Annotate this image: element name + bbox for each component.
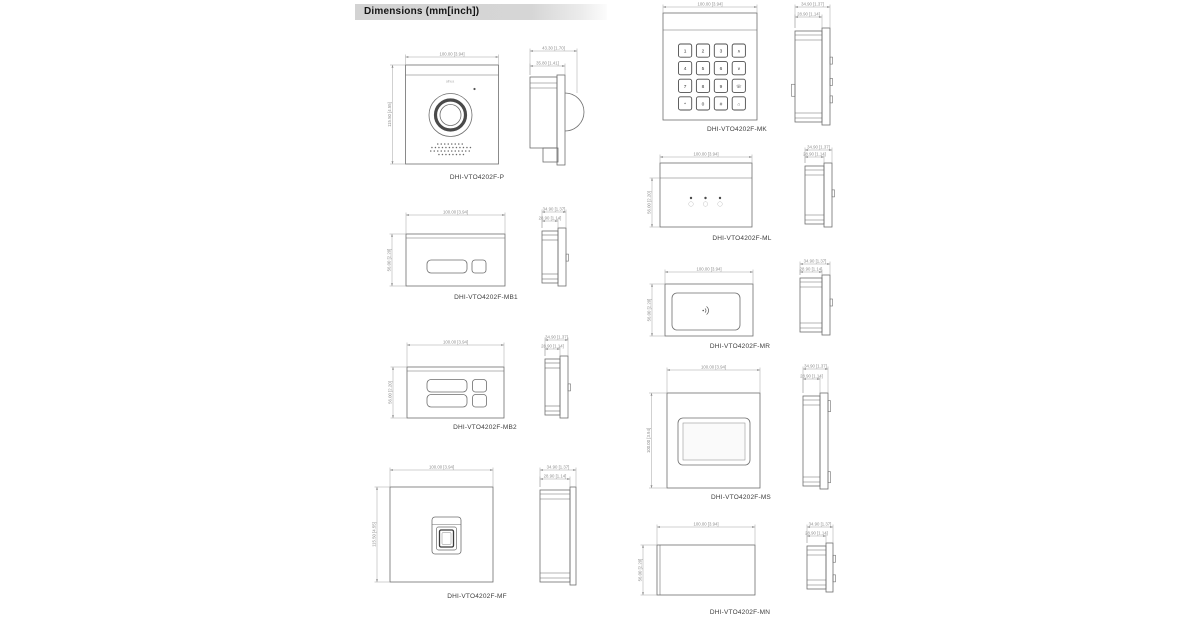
side-view bbox=[545, 356, 571, 418]
indicator-icon bbox=[703, 202, 708, 207]
dim-text: 28.90 [1.14] bbox=[805, 530, 828, 535]
dim-arrow bbox=[392, 415, 394, 418]
indicator-led bbox=[690, 197, 692, 199]
dim-arrow bbox=[651, 178, 653, 181]
speaker-hole bbox=[438, 147, 440, 149]
speaker-hole bbox=[434, 150, 436, 152]
speaker-hole bbox=[444, 143, 446, 145]
speaker-hole bbox=[431, 147, 433, 149]
dim-arrow bbox=[391, 234, 393, 237]
keypad-key: ∧ bbox=[732, 44, 745, 57]
dim-arrow bbox=[562, 65, 565, 67]
dim-arrow bbox=[651, 284, 653, 287]
dim-arrow bbox=[376, 487, 378, 490]
front-view bbox=[406, 234, 505, 286]
dimensions: 100.00 [3.94]56.00 [2.20]34.90 [1.37]28.… bbox=[386, 206, 566, 286]
side-view bbox=[530, 75, 584, 165]
key-label: ∧ bbox=[737, 49, 740, 54]
dim-arrow bbox=[392, 367, 394, 370]
keypad-key: * bbox=[679, 97, 692, 110]
dim-text: 100.00 [3.94] bbox=[443, 209, 468, 214]
dimensions: 100.00 [3.94]56.00 [2.20]34.90 [1.37]28.… bbox=[646, 144, 832, 227]
keypad-key: 9 bbox=[714, 79, 727, 92]
key-label: ⌂ bbox=[737, 101, 740, 106]
side-body bbox=[542, 231, 558, 283]
speaker-hole bbox=[452, 147, 454, 149]
side-foot bbox=[543, 148, 558, 162]
dim-arrow bbox=[392, 65, 394, 68]
speaker-hole bbox=[451, 143, 453, 145]
speaker-hole bbox=[459, 147, 461, 149]
side-body bbox=[545, 359, 560, 415]
contactless-icon bbox=[702, 307, 708, 315]
keypad-key: 3 bbox=[714, 44, 727, 57]
dim-text: 28.90 [1.14] bbox=[800, 266, 823, 271]
key-label: ☏ bbox=[736, 84, 742, 89]
side-mount-plate bbox=[820, 393, 828, 489]
side-body bbox=[530, 77, 557, 148]
dim-arrow bbox=[574, 50, 577, 52]
speaker-hole bbox=[438, 154, 440, 156]
speaker-hole bbox=[437, 143, 439, 145]
speaker-hole bbox=[456, 154, 458, 156]
dim-text: 100.00 [3.94] bbox=[701, 364, 726, 369]
speaker-hole bbox=[470, 147, 472, 149]
dim-text: 100.00 [3.94] bbox=[697, 1, 722, 6]
side-view bbox=[803, 393, 831, 489]
module-drawing-ms: 100.00 [3.94]100.00 [3.94]34.90 [1.37]28… bbox=[646, 363, 831, 501]
speaker-hole bbox=[469, 150, 471, 152]
dim-text: 100.00 [3.94] bbox=[693, 521, 718, 526]
speaker-hole bbox=[458, 150, 460, 152]
dim-text: 56.00 [2.20] bbox=[646, 191, 651, 214]
dim-text: 35.80 [1.41] bbox=[536, 60, 559, 65]
dim-text: 100.00 [3.94] bbox=[439, 51, 464, 56]
front-view: alhua bbox=[406, 65, 499, 164]
dimension-drawings-canvas: alhua100.00 [3.94]115.50 [4.55]43.30 [1.… bbox=[0, 0, 1200, 630]
speaker-hole bbox=[456, 147, 458, 149]
keypad-key: 7 bbox=[679, 79, 692, 92]
keypad-key: 2 bbox=[696, 44, 709, 57]
key-label: * bbox=[684, 101, 686, 107]
dim-arrow bbox=[540, 469, 543, 471]
speaker-hole bbox=[435, 147, 437, 149]
front-view bbox=[657, 545, 755, 595]
dim-arrow bbox=[657, 526, 660, 528]
keypad-key: 6 bbox=[714, 62, 727, 75]
dim-arrow bbox=[651, 224, 653, 227]
speaker-hole bbox=[458, 143, 460, 145]
dim-text: 115.50 [4.55] bbox=[371, 522, 376, 547]
dim-text: 34.90 [1.37] bbox=[543, 206, 566, 211]
module-drawing-mk: 123∧456∨789☏*0#⌂100.00 [3.94]34.90 [1.37… bbox=[663, 1, 833, 133]
side-mount-plate bbox=[822, 28, 830, 125]
dim-arrow bbox=[660, 156, 663, 158]
speaker-hole bbox=[451, 150, 453, 152]
speaker-hole bbox=[455, 150, 457, 152]
keypad-key: 4 bbox=[679, 62, 692, 75]
dim-arrow bbox=[642, 592, 644, 595]
call-button bbox=[472, 260, 486, 273]
indicator-icon bbox=[718, 202, 723, 207]
dim-arrow bbox=[406, 214, 409, 216]
speaker-hole bbox=[441, 143, 443, 145]
dim-arrow bbox=[827, 6, 830, 8]
brand-logo: alhua bbox=[446, 80, 454, 84]
module-drawing-mn: 100.00 [3.94]56.00 [2.20]34.90 [1.37]28.… bbox=[637, 521, 835, 616]
front-view: 123∧456∨789☏*0#⌂ bbox=[663, 13, 757, 120]
side-body bbox=[803, 396, 820, 486]
module-drawing-p: alhua100.00 [3.94]115.50 [4.55]43.30 [1.… bbox=[387, 45, 584, 181]
speaker-hole bbox=[449, 147, 451, 149]
speaker-hole bbox=[448, 150, 450, 152]
dim-arrow bbox=[667, 369, 670, 371]
dim-text: 56.00 [2.20] bbox=[386, 249, 391, 272]
module-label: DHI-VTO4202F-MK bbox=[707, 126, 767, 133]
keypad-key: 8 bbox=[696, 79, 709, 92]
name-tag-slot bbox=[427, 260, 467, 273]
dim-text: 100.00 [3.94] bbox=[429, 464, 454, 469]
module-label: DHI-VTO4202F-MB2 bbox=[453, 424, 517, 431]
dim-text: 115.50 [4.55] bbox=[387, 102, 392, 127]
key-label: 3 bbox=[720, 49, 723, 55]
indicator-led bbox=[719, 197, 721, 199]
keypad-key: 5 bbox=[696, 62, 709, 75]
dim-text: 100.00 [3.94] bbox=[693, 151, 718, 156]
side-mount-plate bbox=[824, 163, 832, 227]
keypad-key: 1 bbox=[679, 44, 692, 57]
wave-arc bbox=[705, 309, 706, 313]
dim-text: 34.90 [1.37] bbox=[809, 521, 832, 526]
speaker-hole bbox=[448, 143, 450, 145]
side-clip bbox=[792, 84, 796, 96]
side-mount-plate bbox=[570, 487, 576, 585]
side-body bbox=[795, 31, 822, 122]
speaker-hole bbox=[462, 150, 464, 152]
dim-arrow bbox=[663, 6, 666, 8]
dim-text: 100.00 [3.94] bbox=[443, 339, 468, 344]
key-label: 4 bbox=[684, 66, 687, 72]
speaker-hole bbox=[459, 154, 461, 156]
speaker-hole bbox=[463, 154, 465, 156]
microphone-hole bbox=[473, 88, 475, 90]
dim-text: 56.00 [2.20] bbox=[646, 299, 651, 322]
front-panel-outline bbox=[407, 367, 504, 418]
module-drawing-mb2: 100.00 [3.94]56.00 [2.20]34.90 [1.37]28.… bbox=[387, 334, 570, 431]
key-label: 9 bbox=[720, 84, 723, 90]
dim-arrow bbox=[391, 283, 393, 286]
side-mount-plate bbox=[822, 275, 830, 335]
side-body bbox=[540, 490, 570, 582]
module-drawing-mr: 100.00 [3.94]56.00 [2.20]34.90 [1.37]28.… bbox=[646, 258, 832, 350]
module-label: DHI-VTO4202F-MF bbox=[447, 593, 507, 600]
dim-text: 100.00 [3.94] bbox=[696, 266, 721, 271]
keypad-key: ∨ bbox=[732, 62, 745, 75]
dim-arrow bbox=[651, 333, 653, 336]
module-drawing-ml: 100.00 [3.94]56.00 [2.20]34.90 [1.37]28.… bbox=[646, 144, 834, 242]
fingerprint-sensor-icon bbox=[432, 517, 461, 554]
call-button bbox=[473, 395, 487, 408]
side-mount-plate bbox=[826, 543, 833, 592]
speaker-hole bbox=[441, 150, 443, 152]
speaker-hole bbox=[455, 143, 457, 145]
dim-text: 34.90 [1.37] bbox=[547, 464, 570, 469]
dim-arrow bbox=[795, 6, 798, 8]
dim-text: 56.00 [2.20] bbox=[387, 381, 392, 404]
indicator-led bbox=[704, 197, 706, 199]
dim-text: 100.00 [3.94] bbox=[646, 428, 651, 453]
name-tag-slot bbox=[427, 380, 467, 393]
side-body bbox=[807, 546, 826, 589]
module-drawing-mf: 100.00 [3.94]115.50 [4.55]34.90 [1.37]28… bbox=[371, 464, 576, 600]
dimensions: 100.00 [3.94]56.00 [2.20]34.90 [1.37]28.… bbox=[646, 258, 830, 336]
dim-text: 28.90 [1.14] bbox=[539, 215, 562, 220]
speaker-hole bbox=[442, 154, 444, 156]
dim-text: 28.90 [1.14] bbox=[803, 151, 826, 156]
speaker-hole bbox=[437, 150, 439, 152]
keypad-key: # bbox=[714, 97, 727, 110]
dim-arrow bbox=[757, 369, 760, 371]
dim-arrow bbox=[502, 214, 505, 216]
keypad-key: 0 bbox=[696, 97, 709, 110]
speaker-hole bbox=[466, 147, 468, 149]
key-label: # bbox=[720, 101, 723, 107]
speaker-grille bbox=[430, 143, 471, 155]
side-view bbox=[800, 275, 833, 335]
side-mount-plate bbox=[558, 228, 566, 286]
key-label: 7 bbox=[684, 84, 687, 90]
camera-dome-profile bbox=[565, 93, 584, 131]
dim-arrow bbox=[749, 156, 752, 158]
display-active-area bbox=[683, 423, 745, 460]
dim-arrow bbox=[390, 469, 393, 471]
dim-arrow bbox=[567, 478, 570, 480]
front-view bbox=[667, 393, 760, 488]
dim-arrow bbox=[827, 263, 830, 265]
dimensions: 100.00 [3.94]34.90 [1.37]28.90 [1.14] bbox=[663, 1, 830, 28]
dimensions: 100.00 [3.94]115.50 [4.55]43.30 [1.70]35… bbox=[387, 45, 577, 164]
speaker-hole bbox=[462, 143, 464, 145]
dim-arrow bbox=[501, 344, 504, 346]
speaker-hole bbox=[430, 150, 432, 152]
front-panel-outline bbox=[657, 545, 755, 595]
speaker-hole bbox=[445, 147, 447, 149]
keypad-key: ☏ bbox=[732, 79, 745, 92]
module-label: DHI-VTO4202F-MR bbox=[710, 343, 770, 350]
dim-arrow bbox=[573, 469, 576, 471]
lens-inner bbox=[440, 105, 461, 126]
front-view bbox=[390, 487, 493, 582]
speaker-hole bbox=[449, 154, 451, 156]
side-mount-plate bbox=[560, 356, 568, 418]
key-label: 1 bbox=[684, 49, 687, 55]
camera-lens-icon bbox=[429, 94, 472, 137]
side-view bbox=[792, 28, 833, 125]
dim-arrow bbox=[490, 469, 493, 471]
dimensions: 100.00 [3.94]115.50 [4.55]34.90 [1.37]28… bbox=[371, 464, 576, 582]
speaker-hole bbox=[444, 150, 446, 152]
dimensions: 100.00 [3.94]56.00 [2.20]34.90 [1.37]28.… bbox=[387, 334, 568, 418]
dim-text: 34.90 [1.37] bbox=[545, 334, 568, 339]
side-view bbox=[542, 228, 569, 286]
dim-text: 56.00 [2.20] bbox=[637, 559, 642, 582]
dim-arrow bbox=[754, 6, 757, 8]
keypad-key: ⌂ bbox=[732, 97, 745, 110]
speaker-hole bbox=[442, 147, 444, 149]
side-view bbox=[540, 487, 576, 585]
module-label: DHI-VTO4202F-MN bbox=[710, 609, 770, 616]
side-body bbox=[800, 278, 822, 332]
dim-text: 34.90 [1.37] bbox=[804, 363, 827, 368]
dim-text: 28.90 [1.14] bbox=[541, 343, 564, 348]
dim-text: 34.90 [1.37] bbox=[807, 144, 830, 149]
key-label: 0 bbox=[702, 101, 705, 107]
dim-arrow bbox=[540, 478, 543, 480]
module-label: DHI-VTO4202F-MS bbox=[711, 494, 771, 501]
name-tag-slot bbox=[427, 395, 467, 408]
front-panel-outline bbox=[390, 487, 493, 582]
call-button bbox=[473, 380, 487, 393]
dim-text: 28.90 [1.14] bbox=[800, 373, 823, 378]
key-label: ∨ bbox=[737, 66, 740, 71]
dim-arrow bbox=[530, 50, 533, 52]
dim-arrow bbox=[392, 161, 394, 164]
indicator-icon bbox=[689, 202, 694, 207]
dim-arrow bbox=[750, 271, 753, 273]
dim-arrow bbox=[407, 344, 410, 346]
module-label: DHI-VTO4202F-ML bbox=[712, 235, 771, 242]
dim-arrow bbox=[800, 263, 803, 265]
front-view bbox=[665, 284, 753, 336]
module-label: DHI-VTO4202F-MB1 bbox=[454, 294, 518, 301]
dim-arrow bbox=[530, 65, 533, 67]
key-label: 6 bbox=[720, 66, 723, 72]
module-label: DHI-VTO4202F-P bbox=[450, 174, 504, 181]
wave-arc bbox=[707, 307, 709, 315]
dim-arrow bbox=[406, 56, 409, 58]
dim-arrow bbox=[376, 579, 378, 582]
dim-arrow bbox=[496, 56, 499, 58]
side-view bbox=[805, 163, 835, 227]
side-view bbox=[807, 543, 836, 592]
keypad: 123∧456∨789☏*0#⌂ bbox=[679, 44, 746, 110]
dim-text: 28.90 [1.14] bbox=[544, 473, 567, 478]
dimensions: 100.00 [3.94]56.00 [2.20]34.90 [1.37]28.… bbox=[637, 521, 833, 595]
dim-text: 28.90 [1.14] bbox=[797, 11, 820, 16]
dim-text: 34.90 [1.37] bbox=[804, 258, 827, 263]
wave-dot bbox=[702, 310, 704, 312]
dim-text: 34.90 [1.37] bbox=[801, 1, 824, 6]
speaker-hole bbox=[452, 154, 454, 156]
front-panel-outline bbox=[660, 163, 752, 227]
key-label: 8 bbox=[702, 84, 705, 90]
key-label: 5 bbox=[702, 66, 705, 72]
speaker-hole bbox=[465, 150, 467, 152]
key-label: 2 bbox=[702, 49, 705, 55]
dim-arrow bbox=[642, 545, 644, 548]
dim-arrow bbox=[651, 393, 653, 396]
module-drawing-mb1: 100.00 [3.94]56.00 [2.20]34.90 [1.37]28.… bbox=[386, 206, 568, 301]
front-view bbox=[660, 163, 752, 227]
dim-arrow bbox=[752, 526, 755, 528]
dim-text: 43.30 [1.70] bbox=[542, 45, 565, 50]
dim-arrow bbox=[651, 485, 653, 488]
speaker-hole bbox=[463, 147, 465, 149]
fp-glass bbox=[442, 533, 451, 545]
front-view bbox=[407, 367, 504, 418]
speaker-hole bbox=[445, 154, 447, 156]
dim-arrow bbox=[665, 271, 668, 273]
